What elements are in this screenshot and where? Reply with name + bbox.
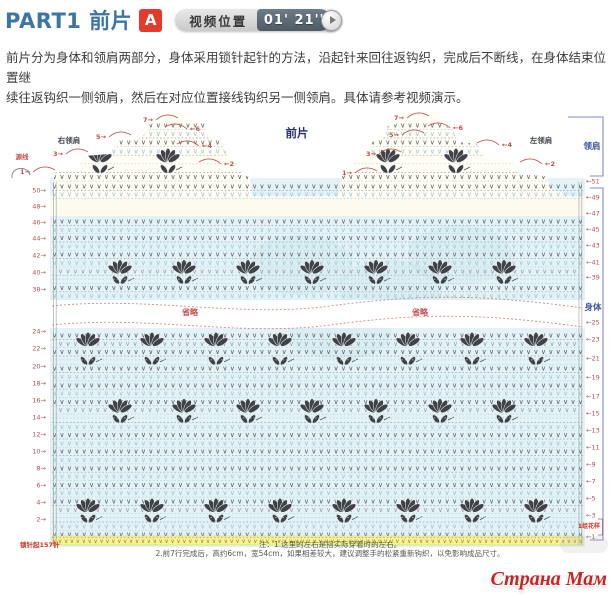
pattern-page: PART1 前片 A 视频位置 01' 21'' 前片分为身体和领肩两部分，身体… <box>0 0 610 594</box>
svg-text:50→: 50→ <box>32 187 46 195</box>
svg-text:←2: ←2 <box>545 160 555 168</box>
svg-text:←19: ←19 <box>586 374 600 382</box>
row-numbers-right: ←51←49←47←45←43←41←39←25←23←21←19←17←15←… <box>586 178 600 520</box>
svg-text:5→: 5→ <box>96 133 107 141</box>
row-numbers-left: 50→48→46→44→42→40→38→24→22→20→18→16→14→1… <box>32 187 46 524</box>
svg-text:←39: ←39 <box>586 274 600 282</box>
site-watermark: Страна Мам <box>491 568 607 591</box>
svg-text:左领肩: 左领肩 <box>529 135 553 145</box>
svg-text:←25: ←25 <box>586 319 600 327</box>
svg-text:身体: 身体 <box>583 302 602 313</box>
svg-text:←13: ←13 <box>586 427 600 435</box>
svg-text:←17: ←17 <box>586 393 600 401</box>
svg-text:40→: 40→ <box>32 269 46 277</box>
svg-text:←49: ←49 <box>586 194 600 202</box>
svg-text:14→: 14→ <box>32 414 46 422</box>
svg-text:8→: 8→ <box>36 465 46 473</box>
svg-text:前片: 前片 <box>286 126 309 140</box>
svg-text:24→: 24→ <box>32 328 46 336</box>
svg-text:∨∨∨∨∨∨∨∨∨∨∨∨∨∨∨∨∨∨∨∨∨∨∨∨∨∨∨∨∨∨: ∨∨∨∨∨∨∨∨∨∨∨∨∨∨∨∨∨∨∨∨∨∨∨∨∨∨∨∨∨∨∨∨∨∨∨∨∨∨∨∨… <box>52 130 583 138</box>
photo-watermark-pill <box>560 536 608 553</box>
svg-text:←4: ←4 <box>202 142 212 150</box>
svg-text:3→: 3→ <box>366 150 377 158</box>
svg-text:←15: ←15 <box>586 410 600 418</box>
svg-text:10→: 10→ <box>32 448 46 456</box>
svg-text:省略: 省略 <box>411 307 429 317</box>
svg-text:38→: 38→ <box>32 286 46 294</box>
svg-text:20→: 20→ <box>32 363 46 371</box>
omitted-rows-band <box>50 300 585 328</box>
svg-text:←6: ←6 <box>453 124 463 132</box>
svg-text:←43: ←43 <box>586 242 600 250</box>
svg-text:18→: 18→ <box>32 380 46 388</box>
svg-text:4→: 4→ <box>36 499 46 507</box>
svg-text:←3: ←3 <box>586 512 596 520</box>
svg-text:←7: ←7 <box>586 478 596 486</box>
svg-text:←47: ←47 <box>586 210 600 218</box>
svg-text:←11: ←11 <box>586 444 600 452</box>
svg-text:←45: ←45 <box>586 226 600 234</box>
svg-text:5→: 5→ <box>389 131 400 139</box>
svg-text:省略: 省略 <box>181 307 199 317</box>
svg-text:←41: ←41 <box>586 259 600 267</box>
svg-text:1组花样: 1组花样 <box>578 522 600 530</box>
svg-text:∨∨∨∨∨∨∨∨∨∨∨∨∨∨∨∨∨∨∨∨∨∨∨∨∨∨∨∨∨∨: ∨∨∨∨∨∨∨∨∨∨∨∨∨∨∨∨∨∨∨∨∨∨∨∨∨∨∨∨∨∨∨∨∨∨∨∨∨∨∨∨… <box>52 122 583 130</box>
svg-text:右领肩: 右领肩 <box>57 135 81 145</box>
svg-text:22→: 22→ <box>32 345 46 353</box>
svg-text:6→: 6→ <box>36 482 46 490</box>
svg-text:16→: 16→ <box>32 397 46 405</box>
svg-text:←6: ←6 <box>190 125 200 133</box>
crochet-chart: ∨∨∨∨∨∨∨∨∨∨∨∨∨∨∨∨∨∨∨∨∨∨∨∨∨∨∨∨∨∨∨∨∨∨∨∨∨∨∨∨… <box>0 0 610 594</box>
chart-notes: 注：1.这里的左右是指实际穿着时的左右。 2.前7行完成后，高约6cm，宽54c… <box>0 540 610 558</box>
svg-text:7→: 7→ <box>143 116 154 124</box>
svg-text:←21: ←21 <box>586 355 600 363</box>
svg-text:3→: 3→ <box>53 150 64 158</box>
note-line-1: 注：1.这里的左右是指实际穿着时的左右。 <box>0 540 610 549</box>
svg-text:←2: ←2 <box>224 160 234 168</box>
note-line-2: 2.前7行完成后，高约6cm，宽54cm，如果相差较大，建议调整手的松紧重新钩织… <box>0 549 610 558</box>
svg-text:←23: ←23 <box>586 336 600 344</box>
svg-text:7→: 7→ <box>394 114 405 122</box>
svg-text:领肩: 领肩 <box>582 141 600 152</box>
svg-text:1→: 1→ <box>342 169 353 177</box>
svg-text:42→: 42→ <box>32 252 46 260</box>
svg-text:←4: ←4 <box>502 141 512 149</box>
svg-text:12→: 12→ <box>32 431 46 439</box>
svg-text:源线: 源线 <box>16 152 30 161</box>
svg-text:←9: ←9 <box>586 461 596 469</box>
svg-text:44→: 44→ <box>32 235 46 243</box>
svg-text:48→: 48→ <box>32 203 46 211</box>
svg-text:←5: ←5 <box>586 495 596 503</box>
svg-text:2→: 2→ <box>36 516 46 524</box>
svg-text:46→: 46→ <box>32 219 46 227</box>
svg-text:←51: ←51 <box>586 178 600 186</box>
